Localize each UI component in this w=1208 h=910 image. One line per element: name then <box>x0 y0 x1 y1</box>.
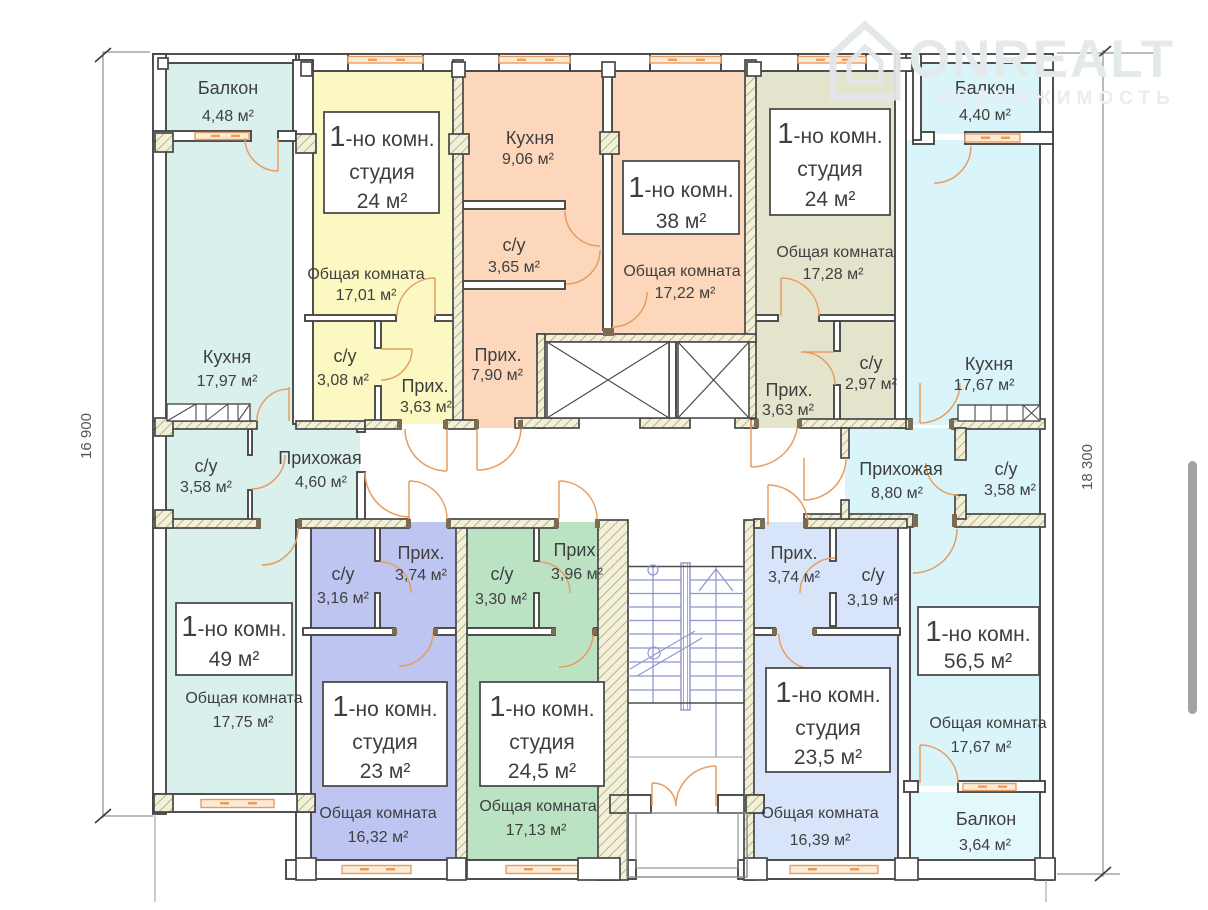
svg-text:3,58 м²: 3,58 м² <box>180 479 233 496</box>
svg-text:56,5 м²: 56,5 м² <box>944 650 1012 673</box>
svg-text:Балкон: Балкон <box>198 78 258 98</box>
svg-text:Прих.: Прих. <box>553 540 600 560</box>
svg-text:Общая комната: Общая комната <box>307 266 424 283</box>
svg-text:3,19 м²: 3,19 м² <box>847 592 900 609</box>
svg-text:24,5 м²: 24,5 м² <box>508 760 576 783</box>
svg-text:студия: студия <box>352 731 418 754</box>
svg-text:4,40 м²: 4,40 м² <box>959 107 1012 124</box>
svg-text:17,75 м²: 17,75 м² <box>213 714 274 731</box>
svg-text:с/у: с/у <box>194 456 217 476</box>
svg-text:Прих.: Прих. <box>770 543 817 563</box>
svg-text:Общая комната: Общая комната <box>185 690 302 707</box>
svg-text:3,08 м²: 3,08 м² <box>317 372 370 389</box>
svg-text:3,63 м²: 3,63 м² <box>400 399 453 416</box>
svg-text:17,67 м²: 17,67 м² <box>951 739 1012 756</box>
svg-text:3,96 м²: 3,96 м² <box>551 566 604 583</box>
svg-text:Прихожая: Прихожая <box>278 448 361 468</box>
svg-text:с/у: с/у <box>331 564 354 584</box>
svg-text:с/у: с/у <box>333 346 356 366</box>
svg-text:17,13 м²: 17,13 м² <box>506 822 567 839</box>
svg-text:Кухня: Кухня <box>506 128 554 148</box>
svg-text:Кухня: Кухня <box>965 354 1013 374</box>
svg-text:Прих.: Прих. <box>765 380 812 400</box>
svg-text:49 м²: 49 м² <box>209 648 260 671</box>
svg-text:38 м²: 38 м² <box>656 210 707 233</box>
svg-text:16,39 м²: 16,39 м² <box>790 832 851 849</box>
svg-text:Прих.: Прих. <box>397 543 444 563</box>
svg-text:17,67 м²: 17,67 м² <box>954 377 1015 394</box>
svg-text:3,30 м²: 3,30 м² <box>475 591 528 608</box>
svg-text:23 м²: 23 м² <box>360 760 411 783</box>
svg-text:2,97 м²: 2,97 м² <box>845 376 898 393</box>
svg-text:8,80 м²: 8,80 м² <box>871 485 924 502</box>
svg-text:3,58 м²: 3,58 м² <box>984 482 1037 499</box>
svg-text:3,65 м²: 3,65 м² <box>488 259 541 276</box>
svg-text:17,97 м²: 17,97 м² <box>197 373 258 390</box>
svg-text:Балкон: Балкон <box>956 809 1016 829</box>
svg-text:23,5 м²: 23,5 м² <box>794 746 862 769</box>
svg-text:Общая комната: Общая комната <box>623 263 740 280</box>
svg-text:Прих.: Прих. <box>401 376 448 396</box>
svg-text:Общая комната: Общая комната <box>479 798 596 815</box>
svg-text:студия: студия <box>349 161 415 184</box>
svg-text:17,01 м²: 17,01 м² <box>336 287 397 304</box>
svg-text:3,16 м²: 3,16 м² <box>317 590 370 607</box>
svg-text:Прихожая: Прихожая <box>859 459 942 479</box>
svg-text:ONREALT: ONREALT <box>909 30 1175 89</box>
svg-text:4,60 м²: 4,60 м² <box>295 474 348 491</box>
svg-text:Общая комната: Общая комната <box>319 805 436 822</box>
svg-text:с/у: с/у <box>861 565 884 585</box>
svg-text:Прих.: Прих. <box>474 345 521 365</box>
svg-text:3,63 м²: 3,63 м² <box>762 402 815 419</box>
svg-text:16,32 м²: 16,32 м² <box>348 829 409 846</box>
svg-text:24 м²: 24 м² <box>805 188 856 211</box>
svg-text:3,74 м²: 3,74 м² <box>395 567 448 584</box>
svg-text:9,06 м²: 9,06 м² <box>502 151 555 168</box>
svg-text:с/у: с/у <box>994 459 1017 479</box>
svg-text:7,90 м²: 7,90 м² <box>471 367 524 384</box>
svg-text:Кухня: Кухня <box>203 347 251 367</box>
svg-text:Общая комната: Общая комната <box>761 805 878 822</box>
svg-text:3,74 м²: 3,74 м² <box>768 569 821 586</box>
svg-text:Общая комната: Общая комната <box>929 715 1046 732</box>
svg-text:Общая комната: Общая комната <box>776 244 893 261</box>
svg-text:16 900: 16 900 <box>78 413 95 459</box>
svg-text:18 300: 18 300 <box>1079 444 1096 490</box>
svg-text:24 м²: 24 м² <box>357 190 408 213</box>
svg-text:3,64 м²: 3,64 м² <box>959 837 1012 854</box>
svg-text:17,22 м²: 17,22 м² <box>655 285 716 302</box>
svg-text:17,28 м²: 17,28 м² <box>803 266 864 283</box>
svg-text:студия: студия <box>509 731 575 754</box>
svg-text:с/у: с/у <box>859 353 882 373</box>
svg-text:студия: студия <box>795 717 861 740</box>
svg-text:4,48 м²: 4,48 м² <box>202 108 255 125</box>
svg-text:НЕДВИЖИМОСТЬ: НЕДВИЖИМОСТЬ <box>936 88 1175 109</box>
svg-text:студия: студия <box>797 158 863 181</box>
svg-text:с/у: с/у <box>502 235 525 255</box>
svg-text:с/у: с/у <box>490 564 513 584</box>
